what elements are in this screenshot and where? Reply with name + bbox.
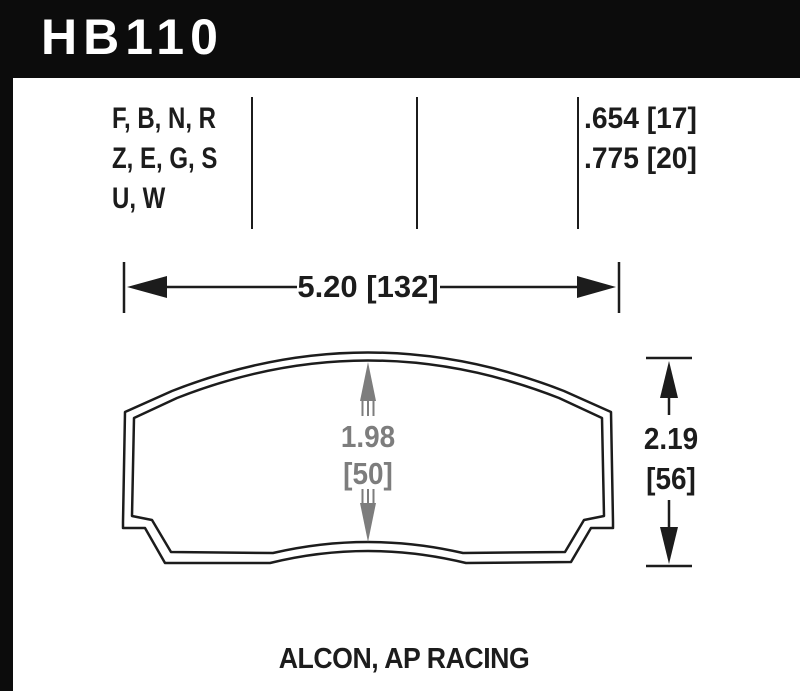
- arrow-right-icon: [577, 276, 616, 298]
- arrow-down-icon: [660, 527, 678, 564]
- arrow-up-gray-icon: [360, 362, 376, 401]
- width-dimension-label: 5.20 [132]: [270, 269, 466, 305]
- compound-codes-line-3: U, W: [112, 179, 217, 219]
- brake-pad-spec-diagram: HB110 F, B, N, R Z, E, G, S U, W .654 [1…: [0, 0, 800, 691]
- table-divider-2: [416, 97, 418, 229]
- table-divider-1: [251, 97, 253, 229]
- overall-height-label-mm: [56]: [626, 461, 716, 497]
- overall-height-label-in: 2.19: [626, 421, 716, 457]
- part-number: HB110: [41, 0, 224, 78]
- arrow-left-icon: [127, 276, 167, 298]
- thickness-value-2: .775 [20]: [584, 139, 697, 179]
- arrow-down-gray-icon: [360, 503, 376, 542]
- pad-height-label-mm: [50]: [323, 456, 413, 492]
- arrow-up-icon: [660, 361, 678, 398]
- footer-applications: ALCON, AP RACING: [36, 643, 772, 676]
- compound-codes: F, B, N, R Z, E, G, S U, W: [112, 99, 217, 219]
- compound-codes-line-1: F, B, N, R: [112, 99, 217, 139]
- compound-codes-line-2: Z, E, G, S: [112, 139, 217, 179]
- thickness-values: .654 [17] .775 [20]: [584, 99, 697, 179]
- thickness-value-1: .654 [17]: [584, 99, 697, 139]
- left-edge-bar: [0, 0, 13, 691]
- pad-height-label-in: 1.98: [323, 419, 413, 455]
- table-divider-3: [577, 97, 579, 229]
